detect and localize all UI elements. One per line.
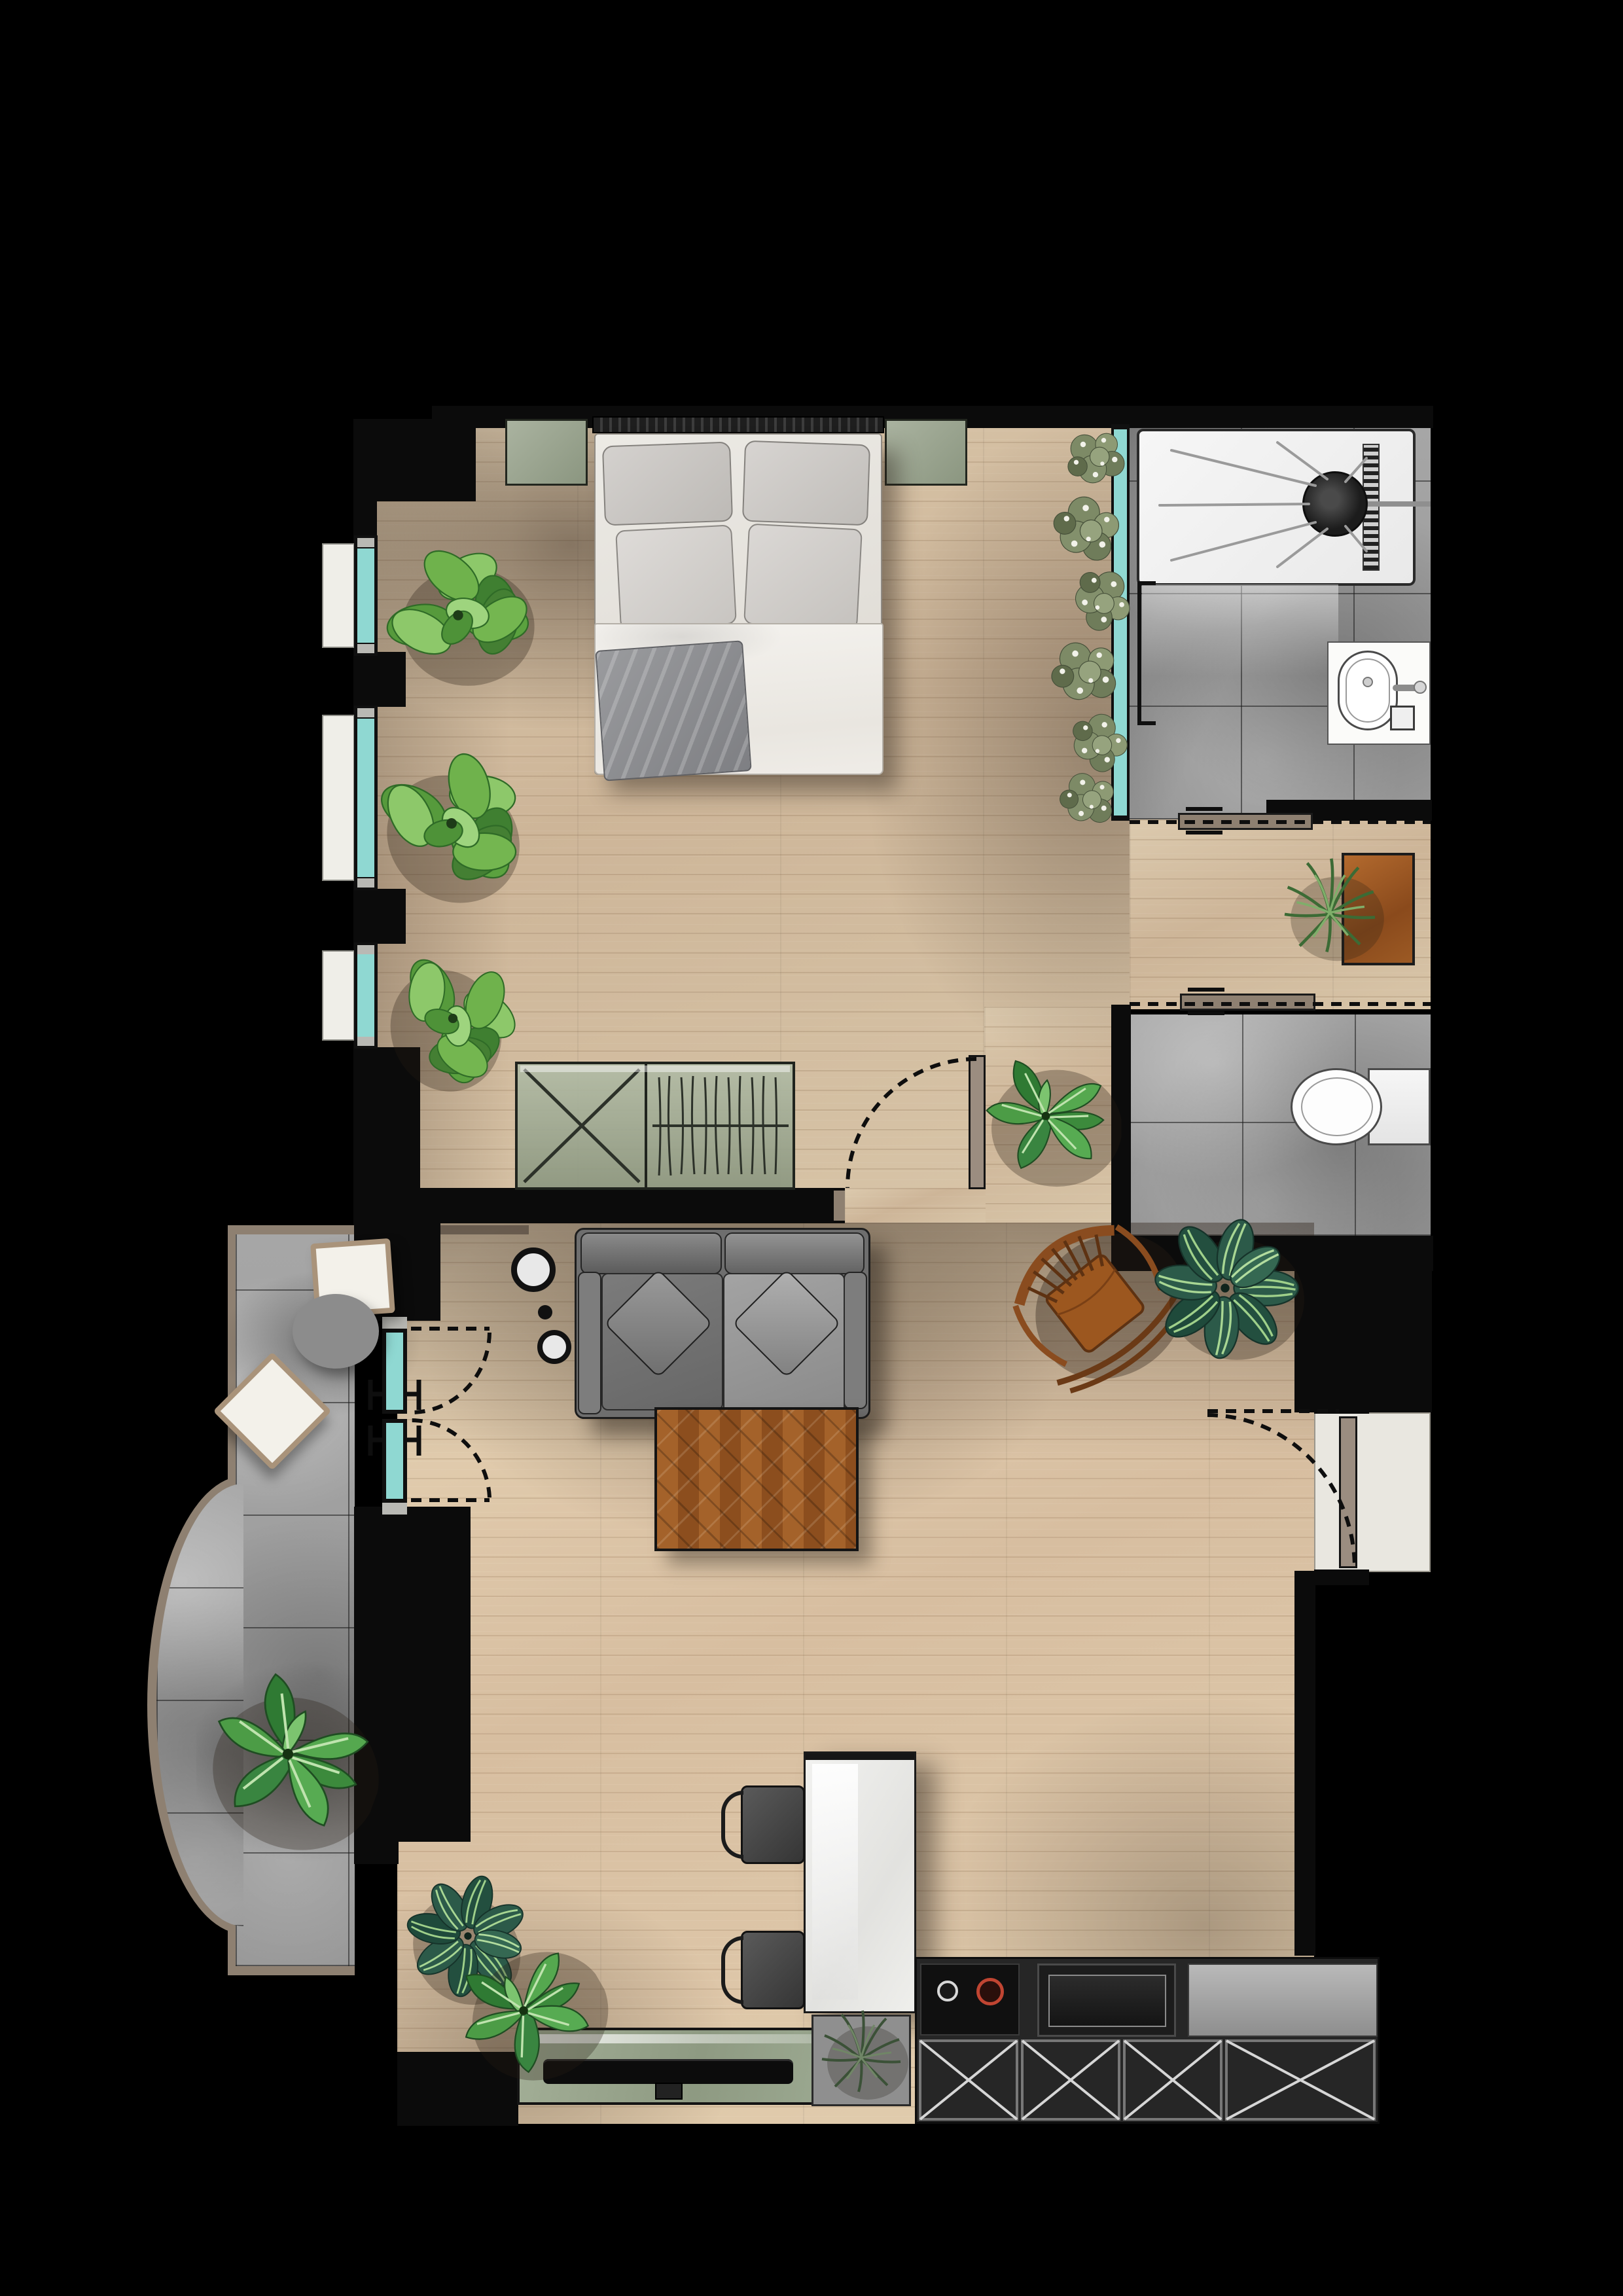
window1-cap-bottom: [357, 644, 374, 653]
bedroom-door-leaf: [969, 1055, 986, 1189]
french-door-glass-top: [386, 1333, 403, 1410]
balcony-table: [293, 1294, 379, 1369]
bed-pillow-2: [742, 440, 870, 526]
bar-stool-2-back: [721, 1936, 743, 2004]
wall-west-block: [354, 1507, 471, 1842]
coffee-table: [654, 1407, 859, 1551]
window2-cap-bottom: [357, 878, 374, 888]
sink-basin-inner: [1346, 658, 1390, 723]
towel-rail: [1137, 581, 1141, 725]
wall-east-upper: [1294, 1270, 1432, 1412]
wall-bedroom-south: [357, 1188, 845, 1223]
kitchen-peninsula: [804, 1751, 916, 2013]
wardrobe-front-detail: [518, 1064, 793, 1187]
nook-floor: [984, 1007, 1115, 1224]
window3-cap-top: [357, 945, 374, 954]
entry-landing: [1314, 1412, 1431, 1572]
towel-rail-tick-top: [1137, 581, 1156, 585]
french-door-glass-bottom: [386, 1423, 403, 1499]
balcony-floor-bulge: [156, 1484, 243, 1926]
television: [543, 2059, 793, 2084]
window1-cap-top: [357, 538, 374, 547]
sink-drain-dot: [1363, 677, 1373, 687]
bar-stool-1-back: [721, 1791, 743, 1859]
cooktop: [920, 1964, 1020, 2036]
bar-stool-2: [741, 1931, 805, 2009]
sofa-back-cushion-right: [724, 1232, 865, 1274]
bed-throw-blanket: [595, 640, 751, 781]
window2-glass: [357, 719, 374, 877]
entry-jamb-top: [1314, 1398, 1369, 1414]
window1-glass: [357, 548, 374, 643]
tv-sideboard-glass-highlight: [524, 2034, 811, 2043]
bedroom-door-jamb: [834, 1191, 845, 1221]
sofa: [575, 1228, 870, 1419]
window3-glass: [357, 954, 374, 1037]
french-door-cap-bottom: [382, 1503, 407, 1515]
wall-pillar-1: [377, 652, 406, 707]
wall-between-block-window: [354, 1842, 399, 1864]
bed-pillow-3: [615, 524, 737, 630]
counter-stainless: [1188, 1964, 1378, 2037]
shower-arm: [1364, 501, 1431, 507]
window2-cap-top: [357, 708, 374, 717]
french-door-cap-top: [382, 1317, 407, 1329]
sink-faucet-knob: [1414, 681, 1427, 694]
floor-plan: [0, 0, 1623, 2296]
shower-light-spill: [1142, 584, 1338, 676]
window3-cap-bottom: [357, 1037, 374, 1046]
wall-toilet-south: [1111, 1236, 1433, 1271]
bed-headboard: [592, 416, 884, 433]
tv-mount: [655, 2083, 683, 2100]
burner-left: [937, 1981, 958, 2001]
bathroom-sliding-door: [1178, 813, 1313, 830]
console-table: [1342, 853, 1415, 965]
sofa-back-cushion-left: [580, 1232, 722, 1274]
nightstand-left: [505, 419, 588, 486]
floor-lamp-shade-large: [511, 1247, 556, 1292]
wall-pillar-2: [377, 889, 406, 944]
window3-sill: [322, 950, 355, 1041]
oven: [1037, 1964, 1176, 2037]
shower-head: [1302, 471, 1368, 537]
bar-stool-1: [741, 1785, 805, 1864]
wall-toilet-west: [1111, 1005, 1131, 1237]
nightstand-right: [885, 419, 967, 486]
oven-door-line: [1048, 1975, 1166, 2027]
wardrobe: [515, 1062, 795, 1190]
entry-jamb-bottom: [1314, 1570, 1369, 1585]
floor-lamp-shade-small: [537, 1330, 571, 1364]
towel-rail-tick-bottom: [1137, 721, 1156, 725]
window2-sill: [322, 715, 355, 881]
soap-dish: [1390, 706, 1415, 730]
doorway-floor: [844, 1188, 986, 1224]
window1-sill: [322, 543, 355, 648]
wall-corner-southwest: [397, 2052, 518, 2126]
kitchen-peninsula-sheen: [812, 1764, 858, 2000]
sofa-armrest-right: [844, 1272, 867, 1409]
kitchen-pot-section: [811, 2015, 911, 2106]
bed-pillow-1: [602, 442, 733, 526]
burner-right: [976, 1978, 1004, 2005]
toilet-sliding-door: [1180, 994, 1315, 1011]
toilet-seat: [1301, 1077, 1373, 1136]
sofa-armrest-left: [578, 1272, 601, 1414]
bath-partition-glass: [1114, 429, 1127, 816]
cabinet-x-fronts: [915, 2037, 1380, 2124]
floor-lamp-joint: [538, 1305, 552, 1319]
wall-east-lower: [1294, 1571, 1315, 1956]
bed-pillow-4: [743, 524, 863, 630]
kitchen-peninsula-top-edge: [806, 1753, 914, 1760]
balcony-parapet-bottom: [229, 1966, 355, 1975]
entry-door-leaf: [1339, 1416, 1357, 1568]
